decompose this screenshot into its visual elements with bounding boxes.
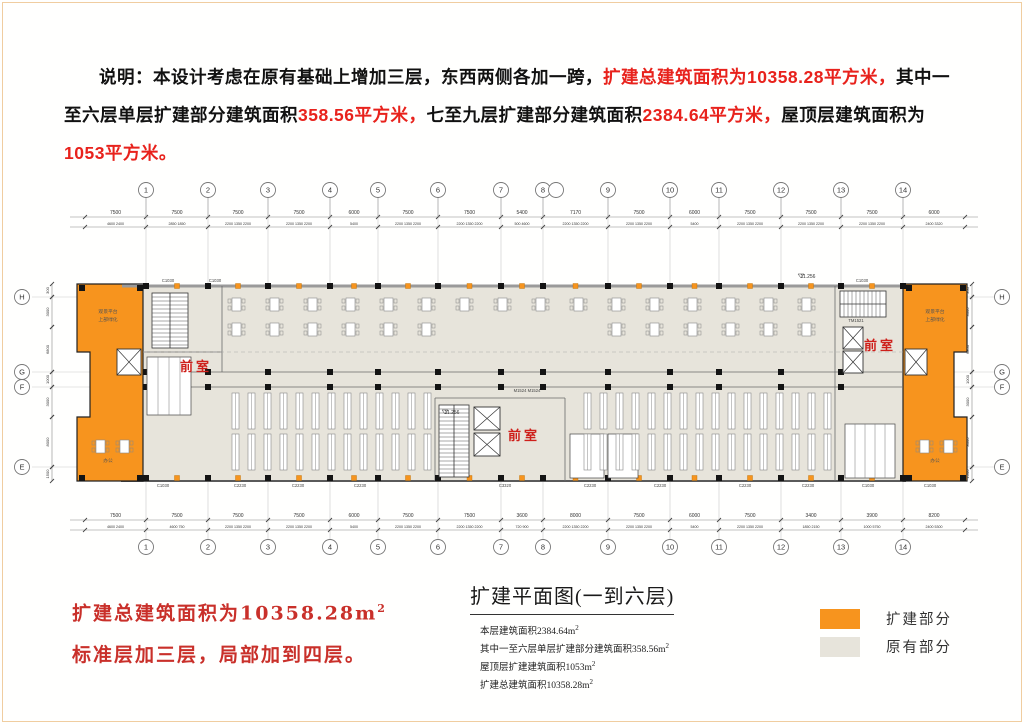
floor-plan: 前室前室前室C1030C2230C2230C2230C3320C2230C223… bbox=[0, 175, 1024, 567]
legend-label: 原有部分 bbox=[886, 636, 952, 657]
dimension-label: 300 bbox=[45, 286, 50, 293]
svg-text:10: 10 bbox=[666, 186, 674, 195]
dimension-label: 5400 bbox=[691, 525, 699, 529]
dimension-label: 7500 bbox=[464, 210, 475, 216]
room-label: 上部绿化 bbox=[925, 316, 944, 323]
svg-text:7: 7 bbox=[499, 543, 503, 552]
dimension-label: 500 4600 bbox=[515, 222, 530, 226]
dimension-label: 2400 5300 bbox=[926, 525, 943, 529]
dimension-label: 7500 bbox=[293, 513, 304, 519]
svg-text:13: 13 bbox=[837, 543, 845, 552]
page: { "description": { "segments": [ {"text"… bbox=[0, 0, 1024, 724]
building bbox=[77, 284, 967, 481]
svg-text:F: F bbox=[1000, 383, 1005, 392]
dimension-label: 3400 bbox=[805, 513, 816, 519]
dimension-label: 7500 bbox=[171, 513, 182, 519]
description-segment: 说明：本设计考虑在原有基础上增加三层，东西两侧各加一跨， bbox=[99, 67, 603, 87]
description-segment: 2384.64平方米， bbox=[643, 105, 782, 125]
dimension-label: 7500 bbox=[402, 513, 413, 519]
dimension-label: 7500 bbox=[110, 513, 121, 519]
svg-text:6: 6 bbox=[436, 543, 440, 552]
dimension-label: 5400 bbox=[516, 210, 527, 216]
dimension-label: 2200 1350 2200 bbox=[859, 222, 885, 226]
svg-text:12: 12 bbox=[777, 543, 785, 552]
red-annotation-line2: 标准层加三层，局部加到四层。 bbox=[72, 634, 387, 676]
dimension-label: 4600 750 bbox=[170, 525, 185, 529]
dimension-label: 2200 1350 2200 bbox=[395, 222, 421, 226]
window-label: C3320 bbox=[499, 483, 512, 488]
legend-swatch bbox=[820, 609, 860, 629]
dimension-label: 7500 bbox=[402, 210, 413, 216]
window-label: C1030 bbox=[209, 278, 222, 283]
svg-text:G: G bbox=[999, 368, 1005, 377]
window-label: C2230 bbox=[354, 483, 367, 488]
dimension-label: 1000 5750 bbox=[864, 525, 881, 529]
grid-bubble bbox=[549, 183, 564, 198]
dimension-label: 7500 bbox=[633, 210, 644, 216]
dimension-label: 7500 bbox=[866, 210, 877, 216]
svg-text:5: 5 bbox=[376, 186, 380, 195]
dimension-label: 300 bbox=[965, 286, 970, 293]
dimension-label: 3000 bbox=[45, 397, 50, 407]
dimension-label: 6000 bbox=[928, 210, 939, 216]
dimension-label: 7500 bbox=[293, 210, 304, 216]
dimension-label: 2200 1350 2200 bbox=[626, 222, 652, 226]
dimension-label: 2200 1350 2200 bbox=[563, 222, 589, 226]
svg-text:14: 14 bbox=[899, 543, 907, 552]
window-label: C2230 bbox=[802, 483, 815, 488]
dimension-label: 7500 bbox=[110, 210, 121, 216]
elevation-mark: 11.256 bbox=[445, 410, 460, 416]
svg-text:E: E bbox=[19, 463, 24, 472]
caption-line: 屋顶层扩建建筑面积1053m2 bbox=[480, 657, 674, 675]
dimension-label: 7500 bbox=[464, 513, 475, 519]
vestibule-label: 前室 bbox=[508, 428, 540, 443]
room-label: 观景平台 bbox=[98, 308, 117, 315]
legend-label: 扩建部分 bbox=[886, 608, 952, 629]
dimension-label: 2200 1350 2200 bbox=[225, 222, 251, 226]
dimension-label: 7500 bbox=[232, 210, 243, 216]
dimension-label: 6800 bbox=[45, 344, 50, 354]
dimension-label: 1000 bbox=[45, 374, 50, 384]
svg-text:3: 3 bbox=[266, 186, 270, 195]
dimension-label: 7500 bbox=[171, 210, 182, 216]
svg-text:13: 13 bbox=[837, 186, 845, 195]
svg-text:G: G bbox=[19, 368, 25, 377]
dimension-label: 3900 bbox=[866, 513, 877, 519]
dimension-label: 6000 bbox=[689, 210, 700, 216]
dimension-label: 1000 bbox=[965, 374, 970, 384]
dimension-label: 1500 bbox=[45, 469, 50, 479]
dimension-label: 2200 1350 2200 bbox=[286, 222, 312, 226]
dimension-label: 6000 bbox=[348, 210, 359, 216]
legend-swatch bbox=[820, 637, 860, 657]
description-segment: 七至九层扩建部分建筑面积 bbox=[427, 105, 643, 125]
dimension-label: 2200 1350 2200 bbox=[395, 525, 421, 529]
dimension-label: 5400 bbox=[350, 525, 358, 529]
svg-text:5: 5 bbox=[376, 543, 380, 552]
dimension-label: 4600 2400 bbox=[107, 525, 124, 529]
dimension-label: 4600 2400 bbox=[107, 222, 124, 226]
svg-text:3: 3 bbox=[266, 543, 270, 552]
svg-text:7: 7 bbox=[499, 186, 503, 195]
dimension-label: 2400 3320 bbox=[926, 222, 943, 226]
legend: 扩建部分 原有部分 bbox=[820, 608, 952, 664]
room-label: 办公 bbox=[930, 457, 940, 464]
dimension-label: 6000 bbox=[689, 513, 700, 519]
dimension-label: 7170 bbox=[570, 210, 581, 216]
window-label: C2230 bbox=[234, 483, 247, 488]
window-label: C2230 bbox=[584, 483, 597, 488]
dimension-label: 2200 1350 2200 bbox=[563, 525, 589, 529]
svg-text:F: F bbox=[20, 383, 25, 392]
dimension-label: 3000 bbox=[45, 307, 50, 317]
room-label: 办公 bbox=[103, 457, 113, 464]
svg-text:4: 4 bbox=[328, 186, 332, 195]
window-label: C1030 bbox=[157, 483, 170, 488]
dimension-label: 8000 bbox=[45, 437, 50, 447]
dimension-label: 2200 1350 2200 bbox=[286, 525, 312, 529]
dimension-label: 7500 bbox=[744, 513, 755, 519]
dimension-label: 2200 1350 2200 bbox=[225, 525, 251, 529]
svg-text:H: H bbox=[19, 293, 24, 302]
drawing-title: 扩建平面图(一到六层) bbox=[470, 580, 674, 615]
dimension-label: 5400 bbox=[350, 222, 358, 226]
dimension-label: 5400 bbox=[691, 222, 699, 226]
toilet-room bbox=[845, 424, 895, 478]
elevation-mark: 11.256 bbox=[801, 274, 816, 280]
dimension-label: 1850 2150 bbox=[803, 525, 820, 529]
room-label: 观景平台 bbox=[925, 308, 944, 315]
dimension-label: 8000 bbox=[570, 513, 581, 519]
dimension-label: 3000 bbox=[965, 307, 970, 317]
door-label: M1524 M1524 bbox=[514, 388, 541, 393]
dimension-label: 7500 bbox=[805, 210, 816, 216]
dimension-label: 2200 1350 2200 bbox=[457, 222, 483, 226]
description-segment: 扩建总建筑面积为10358.28平方米， bbox=[603, 67, 896, 87]
red-annotation: 扩建总建筑面积为10358.28m2 标准层加三层，局部加到四层。 bbox=[72, 588, 387, 676]
door-label: TM1521 bbox=[848, 318, 864, 323]
dimension-label: 6000 bbox=[348, 513, 359, 519]
svg-text:1: 1 bbox=[144, 543, 148, 552]
dimension-label: 2850 1850 bbox=[169, 222, 186, 226]
window-label: C2230 bbox=[654, 483, 667, 488]
window-label: C1030 bbox=[924, 483, 937, 488]
svg-text:10: 10 bbox=[666, 543, 674, 552]
vestibule-label: 前室 bbox=[180, 359, 212, 374]
legend-row-expansion: 扩建部分 bbox=[820, 608, 952, 629]
svg-text:H: H bbox=[999, 293, 1004, 302]
caption-line: 扩建总建筑面积10358.28m2 bbox=[480, 675, 674, 693]
room-label: 上部绿化 bbox=[98, 316, 117, 323]
dimension-label: 1500 bbox=[965, 469, 970, 479]
dimension-label: 8200 bbox=[928, 513, 939, 519]
svg-text:11: 11 bbox=[715, 543, 723, 552]
dimension-label: 3000 bbox=[965, 397, 970, 407]
svg-text:2: 2 bbox=[206, 543, 210, 552]
svg-text:14: 14 bbox=[899, 186, 907, 195]
caption-line: 其中一至六层单层扩建部分建筑面积358.56m2 bbox=[480, 639, 674, 657]
drawing-caption: 扩建平面图(一到六层) 本层建筑面积2384.64m2 其中一至六层单层扩建部分… bbox=[470, 580, 674, 694]
legend-row-existing: 原有部分 bbox=[820, 636, 952, 657]
svg-text:8: 8 bbox=[541, 186, 545, 195]
description-segment: 屋顶层建筑面积为 bbox=[781, 105, 925, 125]
dimension-label: 8000 bbox=[965, 437, 970, 447]
window-label: C1030 bbox=[856, 278, 869, 283]
svg-text:4: 4 bbox=[328, 543, 332, 552]
drawing-caption-lines: 本层建筑面积2384.64m2 其中一至六层单层扩建部分建筑面积358.56m2… bbox=[480, 621, 674, 694]
caption-line: 本层建筑面积2384.64m2 bbox=[480, 621, 674, 639]
dimension-label: 7500 bbox=[744, 210, 755, 216]
window-label: C1030 bbox=[862, 483, 875, 488]
description-segment: 1053平方米。 bbox=[64, 143, 177, 163]
svg-text:9: 9 bbox=[606, 186, 610, 195]
description-note: 说明：本设计考虑在原有基础上增加三层，东西两侧各加一跨，扩建总建筑面积为1035… bbox=[64, 58, 960, 172]
svg-text:6: 6 bbox=[436, 186, 440, 195]
description-segment: 358.56平方米， bbox=[298, 105, 427, 125]
dimension-label: 2200 1350 2200 bbox=[457, 525, 483, 529]
svg-text:1: 1 bbox=[144, 186, 148, 195]
dimension-label: 720 900 bbox=[516, 525, 529, 529]
window-label: C2230 bbox=[292, 483, 305, 488]
dimension-label: 2200 1350 2200 bbox=[798, 222, 824, 226]
dimension-label: 2200 1350 2200 bbox=[737, 222, 763, 226]
dimension-label: 7500 bbox=[232, 513, 243, 519]
svg-text:E: E bbox=[999, 463, 1004, 472]
svg-text:9: 9 bbox=[606, 543, 610, 552]
window-label: C1030 bbox=[162, 278, 175, 283]
dimension-label: 2200 1350 2200 bbox=[626, 525, 652, 529]
window-label: C2230 bbox=[739, 483, 752, 488]
dimension-label: 6800 bbox=[965, 344, 970, 354]
svg-text:2: 2 bbox=[206, 186, 210, 195]
dimension-label: 2200 1350 2200 bbox=[737, 525, 763, 529]
svg-text:12: 12 bbox=[777, 186, 785, 195]
vestibule-label: 前室 bbox=[864, 338, 896, 353]
dimension-label: 7500 bbox=[633, 513, 644, 519]
red-annotation-line1: 扩建总建筑面积为10358.28m2 bbox=[72, 588, 387, 634]
svg-text:8: 8 bbox=[541, 543, 545, 552]
dimension-label: 3600 bbox=[516, 513, 527, 519]
svg-text:11: 11 bbox=[715, 186, 723, 195]
